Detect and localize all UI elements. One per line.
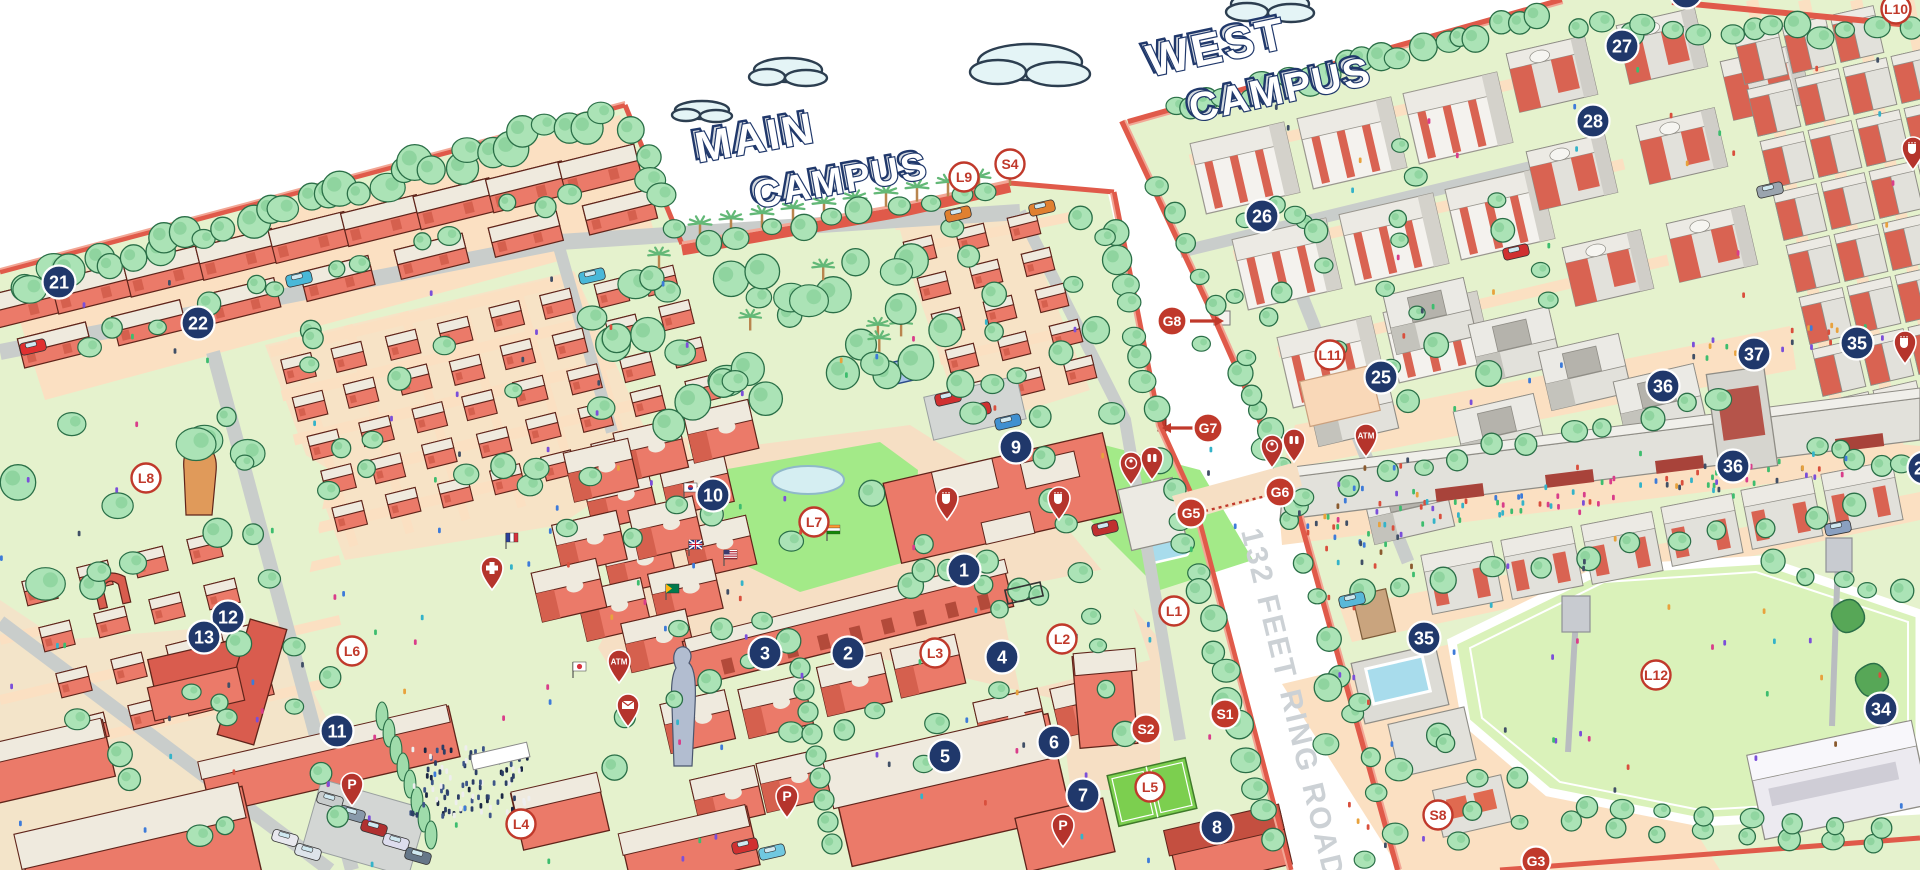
svg-text:26: 26 xyxy=(1252,207,1272,227)
svg-text:36: 36 xyxy=(1653,377,1673,397)
svg-text:12: 12 xyxy=(218,608,238,628)
svg-text:L7: L7 xyxy=(806,514,823,530)
svg-text:L10: L10 xyxy=(1884,1,1908,17)
svg-text:G3: G3 xyxy=(1527,853,1546,869)
svg-text:S1: S1 xyxy=(1216,706,1233,722)
svg-text:2: 2 xyxy=(843,644,853,664)
svg-text:24: 24 xyxy=(1914,459,1920,479)
svg-text:4: 4 xyxy=(997,648,1007,668)
svg-text:10: 10 xyxy=(703,486,723,506)
svg-text:L11: L11 xyxy=(1318,347,1342,363)
svg-text:L2: L2 xyxy=(1054,631,1071,647)
svg-text:7: 7 xyxy=(1078,786,1088,806)
svg-text:28: 28 xyxy=(1583,112,1603,132)
svg-text:8: 8 xyxy=(1212,818,1222,838)
svg-text:35: 35 xyxy=(1414,629,1434,649)
svg-text:36: 36 xyxy=(1723,457,1743,477)
svg-text:1: 1 xyxy=(959,561,969,581)
svg-text:G8: G8 xyxy=(1163,313,1182,329)
svg-text:27: 27 xyxy=(1612,37,1632,57)
svg-text:22: 22 xyxy=(188,314,208,334)
svg-text:35: 35 xyxy=(1847,334,1867,354)
svg-text:29: 29 xyxy=(1676,0,1696,3)
svg-text:25: 25 xyxy=(1371,368,1391,388)
svg-text:S2: S2 xyxy=(1137,721,1154,737)
svg-text:L3: L3 xyxy=(927,645,944,661)
svg-text:13: 13 xyxy=(194,628,214,648)
svg-text:9: 9 xyxy=(1011,438,1021,458)
svg-text:S4: S4 xyxy=(1001,156,1018,172)
svg-text:6: 6 xyxy=(1049,733,1059,753)
svg-text:G5: G5 xyxy=(1182,505,1201,521)
svg-text:P: P xyxy=(1058,817,1067,833)
svg-text:L5: L5 xyxy=(1142,779,1159,795)
svg-text:L8: L8 xyxy=(138,470,155,486)
svg-text:ATM: ATM xyxy=(611,658,628,667)
svg-text:34: 34 xyxy=(1871,700,1891,720)
svg-text:ATM: ATM xyxy=(1358,432,1375,441)
svg-text:11: 11 xyxy=(327,722,346,742)
svg-text:5: 5 xyxy=(940,747,950,767)
svg-text:P: P xyxy=(782,788,791,804)
svg-text:P: P xyxy=(347,776,356,792)
svg-text:37: 37 xyxy=(1744,345,1764,365)
svg-text:L9: L9 xyxy=(956,169,973,185)
svg-text:G6: G6 xyxy=(1271,484,1290,500)
svg-text:L6: L6 xyxy=(344,643,361,659)
svg-text:3: 3 xyxy=(760,644,770,664)
svg-text:L12: L12 xyxy=(1644,667,1668,683)
svg-text:21: 21 xyxy=(49,273,69,293)
svg-text:S8: S8 xyxy=(1429,807,1446,823)
svg-text:L1: L1 xyxy=(1166,603,1183,619)
svg-text:L4: L4 xyxy=(513,816,530,832)
svg-text:G7: G7 xyxy=(1199,420,1218,436)
